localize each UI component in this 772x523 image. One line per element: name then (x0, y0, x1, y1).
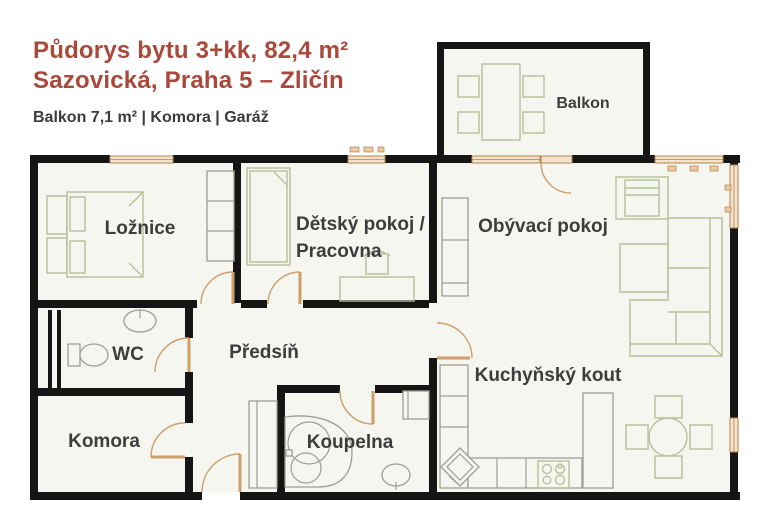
wall-hall-kitchen (429, 358, 437, 492)
hall-closet (249, 401, 277, 488)
label-loznice: Ložnice (105, 218, 176, 239)
wall-top-4 (433, 155, 472, 163)
kitchen-counter-bottom (468, 458, 582, 488)
bathtub-tap (286, 450, 292, 456)
window-sill-mark (378, 147, 384, 152)
wall-right-1 (730, 155, 738, 165)
hallway-furniture (249, 401, 277, 488)
plan-header: Půdorys bytu 3+kk, 82,4 m² Sazovická, Pr… (33, 36, 348, 127)
plan-subtitle: Balkon 7,1 m² | Komora | Garáž (33, 109, 348, 127)
wall-left (30, 155, 38, 500)
wall-top-2 (173, 155, 348, 163)
wall-bath-left (277, 393, 285, 492)
floorplan-page: Ložnice Dětský pokoj / Pracovna Obývací … (0, 0, 772, 523)
wall-top-3 (385, 155, 433, 163)
label-detsky-2: Pracovna (296, 241, 382, 262)
balcony-floor (444, 49, 643, 157)
cabinet (442, 198, 468, 296)
balcony-wall-right (643, 42, 650, 159)
window-sill-mark (364, 147, 373, 152)
balcony-wall-top (437, 42, 650, 49)
wall-bath-top-1 (277, 385, 340, 393)
label-komora: Komora (68, 431, 140, 452)
toilet-tank (68, 344, 80, 366)
wall-bottom-right (240, 492, 740, 500)
wall-wc-komora (38, 388, 193, 396)
wall-right-2 (730, 228, 738, 418)
radiator-mark (668, 166, 676, 171)
label-balkon: Balkon (556, 95, 609, 112)
label-koupelna: Koupelna (307, 432, 394, 453)
wall-children-living (429, 163, 437, 303)
wall-top-1 (30, 155, 110, 163)
balcony-wall-left (437, 42, 444, 159)
wall-right-3 (730, 452, 738, 500)
wc-shaft-line-1 (48, 310, 52, 390)
wall-komora-right-2 (185, 457, 193, 492)
plan-title-line2: Sazovická, Praha 5 – Zličín (33, 66, 348, 96)
radiator-mark (725, 207, 731, 212)
label-detsky-1: Dětský pokoj / (296, 214, 426, 235)
label-predsin: Předsíň (229, 342, 299, 363)
wall-bottom-left (30, 492, 202, 500)
tall-cabinet (583, 393, 613, 488)
radiator-mark (725, 185, 731, 190)
wall-children-bottom-1 (241, 300, 267, 308)
washing-machine (403, 391, 429, 419)
radiator-mark (710, 166, 718, 171)
wall-wc-right-1 (185, 308, 193, 338)
wall-bedroom-bottom (38, 300, 197, 308)
plan-title-line1: Půdorys bytu 3+kk, 82,4 m² (33, 36, 348, 66)
wall-komora-right-1 (185, 396, 193, 423)
label-kuchynsky: Kuchyňský kout (475, 365, 622, 386)
window-sill-mark (350, 147, 359, 152)
wc-shaft-line-2 (57, 310, 61, 390)
label-wc: WC (112, 344, 144, 365)
wardrobe (207, 171, 234, 261)
radiator-mark (690, 166, 698, 171)
toilet-bowl (80, 344, 108, 366)
balcony-door (541, 156, 572, 163)
wall-top-5 (572, 155, 655, 163)
label-obyvaci: Obývací pokoj (478, 216, 608, 237)
